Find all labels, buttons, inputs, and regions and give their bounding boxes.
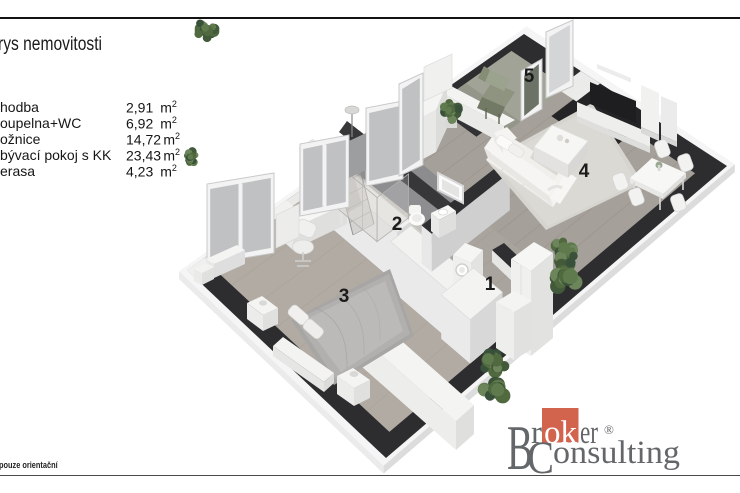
svg-text:onsulting: onsulting <box>553 435 680 471</box>
svg-text:5: 5 <box>524 66 535 87</box>
svg-text:C: C <box>527 432 554 484</box>
svg-text:4: 4 <box>579 161 590 182</box>
svg-text:2: 2 <box>392 214 403 235</box>
svg-text:3: 3 <box>339 286 350 307</box>
svg-text:1: 1 <box>485 274 496 295</box>
